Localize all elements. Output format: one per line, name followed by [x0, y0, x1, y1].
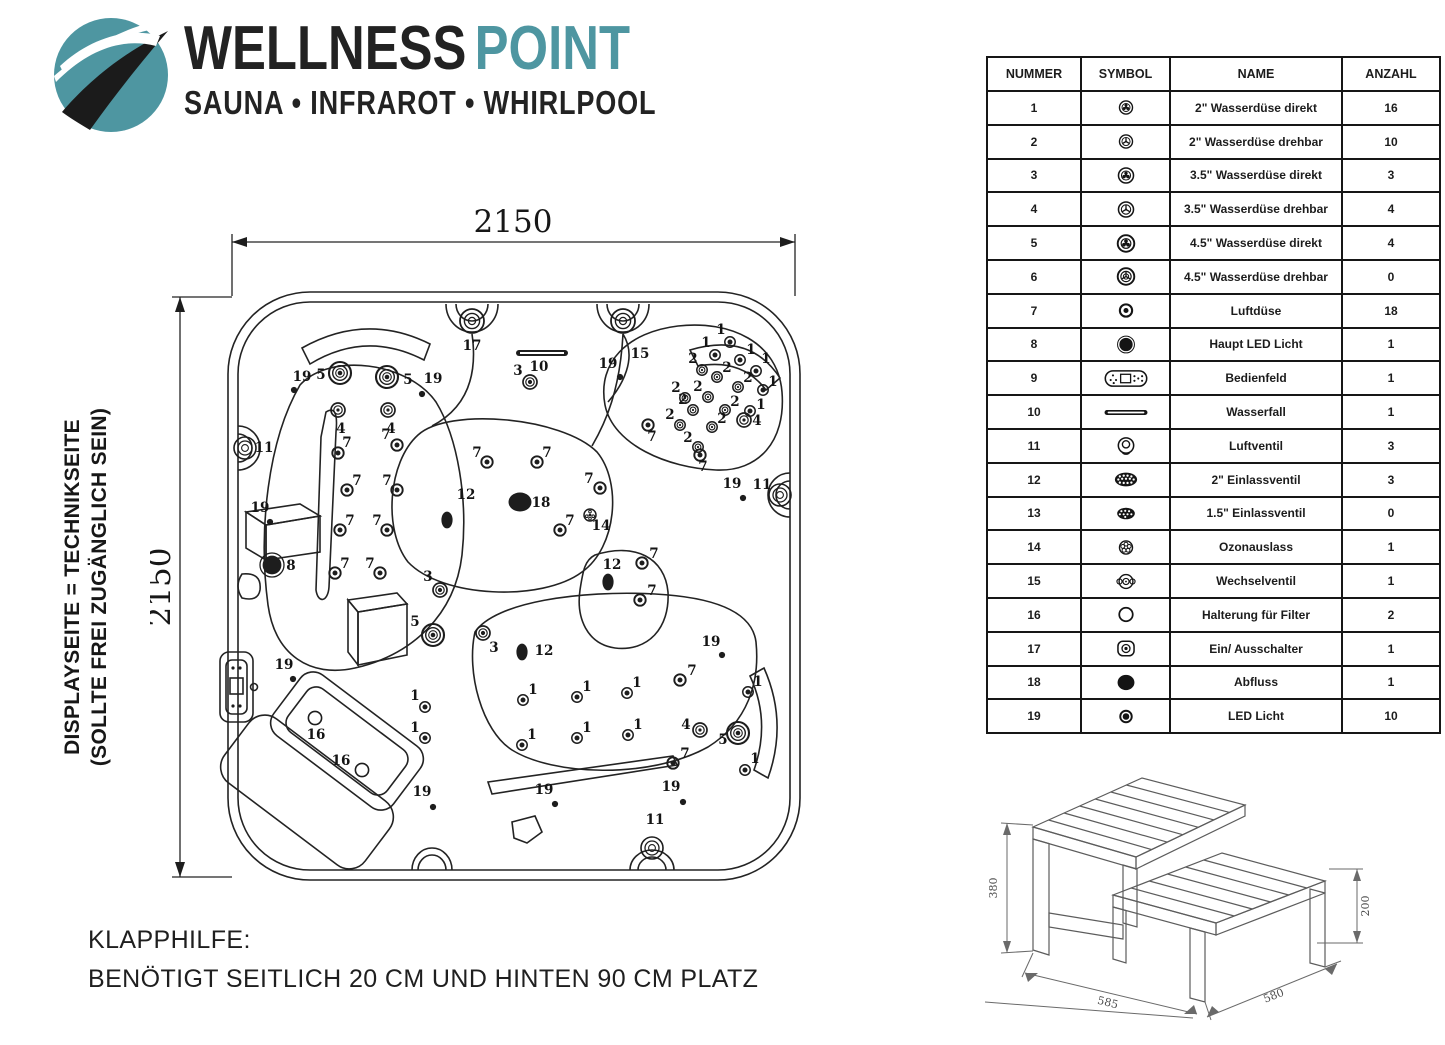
cell-anzahl: 1 [1342, 632, 1440, 666]
cell-symbol [1081, 260, 1170, 294]
dimension-left-value: 2150 [150, 548, 178, 627]
svg-text:7: 7 [342, 435, 351, 451]
wechsel-icon [1103, 568, 1149, 595]
svg-text:1: 1 [582, 679, 591, 695]
svg-text:10: 10 [530, 359, 549, 375]
cell-nummer: 18 [987, 666, 1081, 700]
jet-marker-7: 7 [584, 471, 605, 494]
svg-text:7: 7 [647, 429, 656, 445]
cell-nummer: 8 [987, 328, 1081, 362]
column-header: SYMBOL [1081, 57, 1170, 91]
jet-marker-16: 16 [307, 711, 326, 743]
column-header: NAME [1170, 57, 1342, 91]
jet-marker-2: 2 [712, 360, 732, 382]
svg-text:11: 11 [753, 477, 772, 493]
cell-anzahl: 1 [1342, 564, 1440, 598]
luftduese-icon [1103, 297, 1149, 324]
svg-text:7: 7 [352, 473, 361, 489]
cell-nummer: 16 [987, 598, 1081, 632]
cell-nummer: 9 [987, 361, 1081, 395]
cell-anzahl: 1 [1342, 666, 1440, 700]
jet-marker-7: 7 [694, 449, 707, 475]
jet-marker-2: 2 [733, 370, 753, 392]
cell-name: Luftventil [1170, 429, 1342, 463]
svg-text:5: 5 [410, 614, 419, 630]
parts-table-header-row: NUMMERSYMBOLNAMEANZAHL [987, 57, 1440, 91]
jet-marker-7: 7 [472, 445, 492, 468]
cell-name: Ozonauslass [1170, 530, 1342, 564]
jet-marker-4: 4 [331, 403, 346, 437]
svg-text:8: 8 [286, 558, 295, 574]
haupt-led-icon [1103, 331, 1149, 358]
jet-marker-19: 19 [291, 369, 311, 393]
svg-text:5: 5 [718, 732, 727, 748]
table-row: 22" Wasserdüse drehbar10 [987, 125, 1440, 159]
steps-dimensions: 380 200 585 580 [985, 823, 1372, 1020]
svg-text:2: 2 [665, 407, 674, 423]
cell-anzahl: 18 [1342, 294, 1440, 328]
jet-marker-19: 19 [662, 779, 686, 805]
spec-sheet-page: WELLNESSPOINT SAUNA • INFRAROT • WHIRLPO… [0, 0, 1445, 1045]
svg-text:1: 1 [756, 397, 765, 413]
jet-marker-1: 1 [410, 720, 430, 743]
table-row: 54.5" Wasserdüse direkt4 [987, 226, 1440, 260]
svg-text:19: 19 [535, 782, 554, 798]
brand-primary: WELLNESS [184, 14, 466, 83]
einlass2-icon [1103, 466, 1149, 493]
svg-text:3: 3 [423, 569, 432, 585]
cell-symbol [1081, 159, 1170, 193]
cell-nummer: 13 [987, 497, 1081, 531]
jet-marker-14: 14 [584, 509, 610, 534]
jet-marker-1: 1 [517, 727, 537, 750]
jet-marker-1: 1 [623, 717, 643, 740]
cell-nummer: 1 [987, 91, 1081, 125]
svg-text:7: 7 [565, 513, 574, 529]
cell-nummer: 12 [987, 463, 1081, 497]
jet-marker-19: 19 [251, 500, 273, 525]
svg-text:7: 7 [345, 513, 354, 529]
side-note-line1: DISPLAYSEITE = TECHNIKSEITE [59, 367, 86, 807]
svg-text:7: 7 [365, 556, 374, 572]
svg-text:1: 1 [527, 727, 536, 743]
cell-symbol [1081, 192, 1170, 226]
svg-text:7: 7 [649, 546, 658, 562]
jet-marker-7: 7 [372, 513, 392, 536]
jet-marker-11: 11 [234, 437, 273, 459]
jet-marker-1: 1 [622, 675, 642, 698]
svg-text:7: 7 [381, 427, 390, 443]
cell-nummer: 6 [987, 260, 1081, 294]
cell-name: LED Licht [1170, 699, 1342, 733]
jet-marker-5: 5 [410, 614, 444, 646]
jet-marker-19: 19 [413, 784, 436, 810]
cell-symbol [1081, 497, 1170, 531]
dimension-left: 2150 [150, 297, 232, 877]
jet-marker-19: 19 [275, 657, 296, 682]
jet-marker-1: 1 [701, 335, 720, 360]
bedienfeld-icon [1103, 365, 1149, 392]
svg-text:2: 2 [688, 351, 697, 367]
svg-text:12: 12 [457, 487, 476, 503]
table-row: 7Luftdüse18 [987, 294, 1440, 328]
brand-secondary: POINT [475, 14, 630, 83]
svg-text:15: 15 [631, 346, 650, 362]
svg-text:7: 7 [680, 746, 689, 762]
jet-marker-7: 7 [642, 419, 656, 445]
svg-text:1: 1 [582, 720, 591, 736]
jet-marker-12: 12 [602, 557, 621, 590]
svg-text:1: 1 [410, 720, 419, 736]
svg-text:18: 18 [532, 495, 551, 511]
cell-symbol [1081, 294, 1170, 328]
cell-name: 2" Einlassventil [1170, 463, 1342, 497]
cell-symbol [1081, 91, 1170, 125]
svg-text:19: 19 [251, 500, 270, 516]
steps-depth-label: 585 [1096, 994, 1119, 1012]
svg-text:7: 7 [584, 471, 593, 487]
parts-table-body: 12" Wasserdüse direkt1622" Wasserdüse dr… [987, 91, 1440, 733]
table-row: 10Wasserfall1 [987, 395, 1440, 429]
svg-text:19: 19 [293, 369, 312, 385]
cell-anzahl: 16 [1342, 91, 1440, 125]
cell-name: 1.5" Einlassventil [1170, 497, 1342, 531]
cell-anzahl: 3 [1342, 463, 1440, 497]
jet-marker-1: 1 [743, 674, 763, 697]
steps-height-label: 380 [987, 878, 1000, 899]
jet-marker-1: 1 [572, 679, 592, 702]
table-row: 122" Einlassventil3 [987, 463, 1440, 497]
svg-text:2: 2 [717, 411, 726, 427]
svg-text:3: 3 [513, 363, 522, 379]
wd35-drehbar-icon [1103, 196, 1149, 223]
filterhalter-icon [1103, 601, 1149, 628]
cell-anzahl: 3 [1342, 429, 1440, 463]
cell-nummer: 7 [987, 294, 1081, 328]
cell-anzahl: 4 [1342, 226, 1440, 260]
svg-text:17: 17 [463, 338, 482, 354]
jet-marker-1: 1 [518, 682, 538, 705]
ledlicht-icon [1103, 703, 1149, 730]
jet-marker-2: 2 [688, 351, 707, 375]
jet-marker-7: 7 [554, 513, 574, 536]
cell-nummer: 11 [987, 429, 1081, 463]
cell-name: Wechselventil [1170, 564, 1342, 598]
luftventil-icon [1103, 432, 1149, 459]
cover-lifter-note-body: BENÖTIGT SEITLICH 20 CM UND HINTEN 90 CM… [88, 965, 758, 994]
svg-text:7: 7 [687, 663, 696, 679]
cover-lifter-note: KLAPPHILFE: BENÖTIGT SEITLICH 20 CM UND … [88, 926, 758, 1004]
jet-marker-19: 19 [702, 634, 725, 658]
cell-symbol [1081, 395, 1170, 429]
cell-name: Halterung für Filter [1170, 598, 1342, 632]
cell-name: Abfluss [1170, 666, 1342, 700]
svg-text:1: 1 [761, 351, 770, 367]
jet-marker-1: 1 [758, 374, 778, 395]
svg-text:1: 1 [701, 335, 710, 351]
cell-name: Ein/ Ausschalter [1170, 632, 1342, 666]
wd2-direkt-icon [1103, 94, 1149, 121]
svg-text:7: 7 [472, 445, 481, 461]
jet-marker-19: 19 [419, 371, 442, 397]
cell-anzahl: 1 [1342, 361, 1440, 395]
svg-text:2: 2 [693, 379, 702, 395]
cell-symbol [1081, 598, 1170, 632]
svg-text:1: 1 [528, 682, 537, 698]
svg-text:1: 1 [768, 374, 777, 390]
cell-name: 3.5" Wasserdüse direkt [1170, 159, 1342, 193]
brand-logo: WELLNESSPOINT SAUNA • INFRAROT • WHIRLPO… [52, 16, 760, 134]
svg-text:19: 19 [723, 476, 742, 492]
cell-symbol [1081, 463, 1170, 497]
svg-text:2: 2 [730, 394, 739, 410]
svg-text:2: 2 [671, 380, 680, 396]
cell-anzahl: 1 [1342, 530, 1440, 564]
cell-nummer: 4 [987, 192, 1081, 226]
cell-symbol [1081, 429, 1170, 463]
cell-anzahl: 0 [1342, 497, 1440, 531]
jet-marker-4: 4 [681, 717, 707, 737]
svg-text:12: 12 [603, 557, 622, 573]
jet-marker-16: 16 [332, 753, 369, 777]
cell-anzahl: 10 [1342, 125, 1440, 159]
cell-nummer: 14 [987, 530, 1081, 564]
svg-text:7: 7 [340, 556, 349, 572]
cell-symbol [1081, 530, 1170, 564]
jet-marker-1: 1 [716, 322, 735, 347]
jet-marker-7: 7 [674, 663, 696, 686]
svg-text:14: 14 [592, 518, 611, 534]
table-row: 8Haupt LED Licht1 [987, 328, 1440, 362]
jet-marker-7: 7 [382, 473, 402, 496]
jet-marker-layer: 1919191919191919191955554444333171510111… [234, 309, 791, 859]
cell-nummer: 5 [987, 226, 1081, 260]
svg-text:1: 1 [633, 717, 642, 733]
cell-symbol [1081, 125, 1170, 159]
table-row: 33.5" Wasserdüse direkt3 [987, 159, 1440, 193]
jet-marker-12: 12 [441, 487, 475, 528]
svg-text:12: 12 [535, 643, 554, 659]
wd45-drehbar-icon [1103, 263, 1149, 290]
jet-marker-10: 10 [530, 359, 549, 375]
cell-symbol [1081, 564, 1170, 598]
cell-nummer: 2 [987, 125, 1081, 159]
jet-marker-3: 3 [476, 626, 499, 656]
cell-nummer: 3 [987, 159, 1081, 193]
headrest-top-left [302, 329, 430, 364]
cell-name: Luftdüse [1170, 294, 1342, 328]
jet-marker-7: 7 [329, 556, 349, 579]
side-note: DISPLAYSEITE = TECHNIKSEITE (SOLLTE FREI… [59, 367, 119, 807]
abfluss-icon [1103, 669, 1149, 696]
steps-width-label: 580 [1262, 986, 1286, 1006]
side-note-line2: (SOLLTE FREI ZUGÄNGLICH SEIN) [86, 367, 113, 807]
table-row: 16Halterung für Filter2 [987, 598, 1440, 632]
cover-lifter-note-title: KLAPPHILFE: [88, 926, 758, 955]
jet-marker-7: 7 [341, 473, 361, 496]
svg-text:16: 16 [332, 753, 351, 769]
jet-marker-7: 7 [531, 445, 551, 468]
svg-text:3: 3 [489, 640, 498, 656]
table-row: 131.5" Einlassventil0 [987, 497, 1440, 531]
svg-text:2: 2 [683, 430, 692, 446]
cell-nummer: 10 [987, 395, 1081, 429]
table-row: 64.5" Wasserdüse drehbar0 [987, 260, 1440, 294]
jet-marker-5: 5 [376, 366, 413, 388]
wd35-direkt-icon [1103, 162, 1149, 189]
table-row: 9Bedienfeld1 [987, 361, 1440, 395]
cell-name: 4.5" Wasserdüse direkt [1170, 226, 1342, 260]
jet-marker-19: 19 [535, 782, 558, 807]
svg-text:11: 11 [255, 440, 274, 456]
ozon-icon [1103, 534, 1149, 561]
svg-text:19: 19 [599, 356, 618, 372]
tub-contours [213, 304, 790, 877]
svg-text:19: 19 [413, 784, 432, 800]
svg-text:4: 4 [681, 717, 690, 733]
svg-text:7: 7 [382, 473, 391, 489]
jet-marker-12: 12 [516, 643, 553, 660]
cell-name: 3.5" Wasserdüse drehbar [1170, 192, 1342, 226]
steps-step-height-label: 200 [1359, 896, 1372, 917]
svg-text:1: 1 [746, 342, 755, 358]
jet-marker-4: 4 [737, 413, 762, 429]
cell-anzahl: 0 [1342, 260, 1440, 294]
cell-nummer: 15 [987, 564, 1081, 598]
einaus-icon [1103, 635, 1149, 662]
wd2-drehbar-icon [1103, 128, 1149, 155]
table-row: 17Ein/ Ausschalter1 [987, 632, 1440, 666]
brand-text: WELLNESSPOINT SAUNA • INFRAROT • WHIRLPO… [184, 16, 656, 122]
table-row: 14Ozonauslass1 [987, 530, 1440, 564]
cell-symbol [1081, 666, 1170, 700]
cell-nummer: 17 [987, 632, 1081, 666]
svg-text:1: 1 [753, 674, 762, 690]
cell-symbol [1081, 632, 1170, 666]
cell-name: Haupt LED Licht [1170, 328, 1342, 362]
svg-text:19: 19 [662, 779, 681, 795]
wellness-point-logo-icon [52, 16, 170, 134]
steps-drawing: 380 200 585 580 [985, 765, 1445, 1045]
table-row: 43.5" Wasserdüse drehbar4 [987, 192, 1440, 226]
jet-marker-1: 1 [735, 342, 756, 365]
wd45-direkt-icon [1103, 230, 1149, 257]
brand-subtitle: SAUNA • INFRAROT • WHIRLPOOL [184, 84, 656, 122]
svg-text:19: 19 [275, 657, 294, 673]
svg-text:2: 2 [722, 360, 731, 376]
jet-marker-2: 2 [707, 411, 727, 432]
cell-nummer: 19 [987, 699, 1081, 733]
cell-anzahl: 1 [1342, 328, 1440, 362]
svg-text:19: 19 [702, 634, 721, 650]
jet-marker-2: 2 [665, 407, 685, 430]
cell-name: Bedienfeld [1170, 361, 1342, 395]
cell-anzahl: 1 [1342, 395, 1440, 429]
svg-text:11: 11 [646, 812, 665, 828]
jet-marker-19: 19 [723, 476, 746, 501]
svg-text:7: 7 [647, 583, 656, 599]
svg-text:1: 1 [750, 751, 759, 767]
svg-text:1: 1 [632, 675, 641, 691]
svg-text:5: 5 [316, 367, 325, 383]
cell-symbol [1081, 699, 1170, 733]
svg-text:2: 2 [743, 370, 752, 386]
table-row: 11Luftventil3 [987, 429, 1440, 463]
jet-marker-1: 1 [410, 688, 430, 712]
cell-name: Wasserfall [1170, 395, 1342, 429]
table-row: 18Abfluss1 [987, 666, 1440, 700]
jet-marker-3: 3 [423, 569, 447, 597]
svg-text:5: 5 [403, 372, 412, 388]
jet-marker-2: 2 [693, 379, 713, 402]
cell-anzahl: 3 [1342, 159, 1440, 193]
cell-name: 4.5" Wasserdüse drehbar [1170, 260, 1342, 294]
cell-anzahl: 2 [1342, 598, 1440, 632]
svg-text:19: 19 [424, 371, 443, 387]
jet-marker-18: 18 [509, 493, 551, 512]
parts-table: NUMMERSYMBOLNAMEANZAHL 12" Wasserdüse di… [986, 56, 1441, 734]
svg-text:7: 7 [698, 459, 707, 475]
whirlpool-top-view-drawing: 2150 2150 [150, 200, 850, 900]
dimension-top-value: 2150 [474, 204, 553, 240]
tub-outline [228, 292, 800, 880]
cell-symbol [1081, 226, 1170, 260]
table-row: 15Wechselventil1 [987, 564, 1440, 598]
svg-text:7: 7 [372, 513, 381, 529]
cell-symbol [1081, 328, 1170, 362]
jet-marker-7: 7 [365, 556, 385, 579]
cell-anzahl: 10 [1342, 699, 1440, 733]
cell-anzahl: 4 [1342, 192, 1440, 226]
brand-title: WELLNESSPOINT [184, 16, 656, 82]
wasserfall-icon [1103, 399, 1149, 426]
jet-marker-7: 7 [334, 513, 354, 536]
column-header: NUMMER [987, 57, 1081, 91]
cell-name: 2" Wasserdüse direkt [1170, 91, 1342, 125]
svg-text:1: 1 [716, 322, 725, 338]
svg-text:16: 16 [307, 727, 326, 743]
cell-symbol [1081, 361, 1170, 395]
steps-structure [1033, 778, 1325, 1002]
table-row: 12" Wasserdüse direkt16 [987, 91, 1440, 125]
table-row: 19LED Licht10 [987, 699, 1440, 733]
svg-text:1: 1 [410, 688, 419, 704]
svg-text:7: 7 [542, 445, 551, 461]
cell-name: 2" Wasserdüse drehbar [1170, 125, 1342, 159]
column-header: ANZAHL [1342, 57, 1440, 91]
einlass15-icon [1103, 500, 1149, 527]
jet-marker-1: 1 [572, 720, 592, 743]
dimension-top: 2150 [232, 204, 795, 296]
